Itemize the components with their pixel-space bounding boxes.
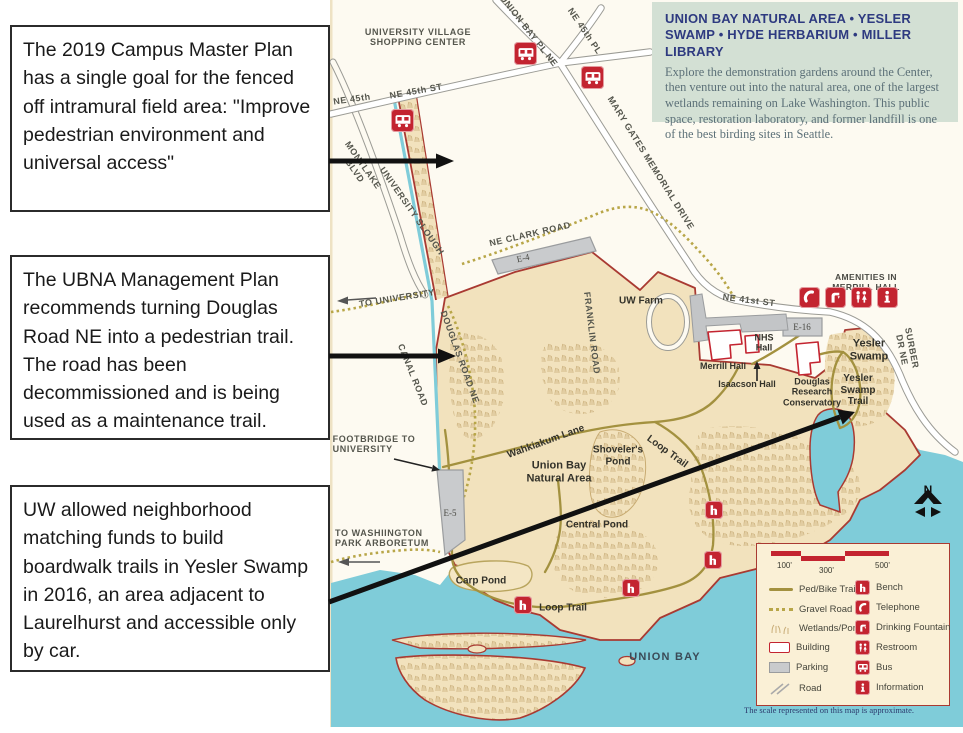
pedbike-swatch [769, 588, 793, 591]
bus-icon [855, 660, 870, 675]
legend-label: Building [796, 642, 830, 653]
bench-icon [514, 596, 532, 614]
legend-item-road: Road [769, 682, 822, 695]
scale-label: 500' [875, 561, 890, 570]
information-icon [855, 680, 870, 695]
bus-icon [581, 66, 604, 89]
note-box-yesler-swamp: UW allowed neighborhood matching funds t… [10, 485, 330, 672]
drinking-fountain-icon [825, 287, 846, 308]
legend-item-wetlands: Wetlands/Ponds [769, 622, 868, 635]
legend-label: Bench [876, 582, 903, 593]
legend-item-information: Information [855, 680, 924, 695]
legend-label: Information [876, 682, 924, 693]
bench-icon [622, 579, 640, 597]
info-box: UNION BAY NATURAL AREA • YESLER SWAMP • … [652, 2, 958, 122]
scale-label: 100' [777, 561, 792, 570]
bench-icon [705, 501, 723, 519]
scale-bar-segment [771, 551, 801, 556]
bench-icon [704, 551, 722, 569]
legend-label: Drinking Fountain [876, 622, 950, 633]
legend-label: Ped/Bike Trail [799, 584, 858, 595]
note-box-ubna-plan: The UBNA Management Plan recommends turn… [10, 255, 330, 440]
info-box-body: Explore the demonstration gardens around… [665, 65, 945, 143]
telephone-icon [799, 287, 820, 308]
bus-icon [514, 42, 537, 65]
map-legend: 100' 300' 500' Ped/Bike Trail Gravel Roa… [756, 543, 950, 706]
drinking-fountain-icon [855, 620, 870, 635]
legend-label: Gravel Road [799, 604, 852, 615]
gravel-swatch [769, 608, 793, 611]
scale-label: 300' [819, 566, 834, 575]
legend-item-building: Building [769, 642, 830, 653]
note-box-campus-plan: The 2019 Campus Master Plan has a single… [10, 25, 330, 212]
info-box-title: UNION BAY NATURAL AREA • YESLER SWAMP • … [665, 11, 945, 60]
scale-bar-segment [801, 556, 845, 561]
legend-item-parking: Parking [769, 662, 828, 673]
legend-item-restroom: Restroom [855, 640, 917, 655]
building-swatch [769, 642, 790, 653]
wetlands-swatch [769, 622, 793, 635]
telephone-icon [855, 600, 870, 615]
legend-label: Parking [796, 662, 828, 673]
legend-item-telephone: Telephone [855, 600, 920, 615]
restroom-icon [851, 287, 872, 308]
information-icon [877, 287, 898, 308]
scale-bar-segment [845, 551, 889, 556]
legend-item-pedbike: Ped/Bike Trail [769, 584, 858, 595]
slide-canvas: UNIVERSITY VILLAGE SHOPPING CENTER UNION… [0, 0, 963, 733]
legend-item-gravel: Gravel Road [769, 604, 852, 615]
legend-item-bus: Bus [855, 660, 892, 675]
road-swatch [769, 682, 793, 695]
legend-label: Restroom [876, 642, 917, 653]
legend-label: Bus [876, 662, 892, 673]
parking-swatch [769, 662, 790, 673]
bench-icon [855, 580, 870, 595]
legend-label: Telephone [876, 602, 920, 613]
restroom-icon [855, 640, 870, 655]
legend-item-fountain: Drinking Fountain [855, 620, 950, 635]
bus-icon [391, 109, 414, 132]
legend-label: Road [799, 683, 822, 694]
legend-item-bench: Bench [855, 580, 903, 595]
